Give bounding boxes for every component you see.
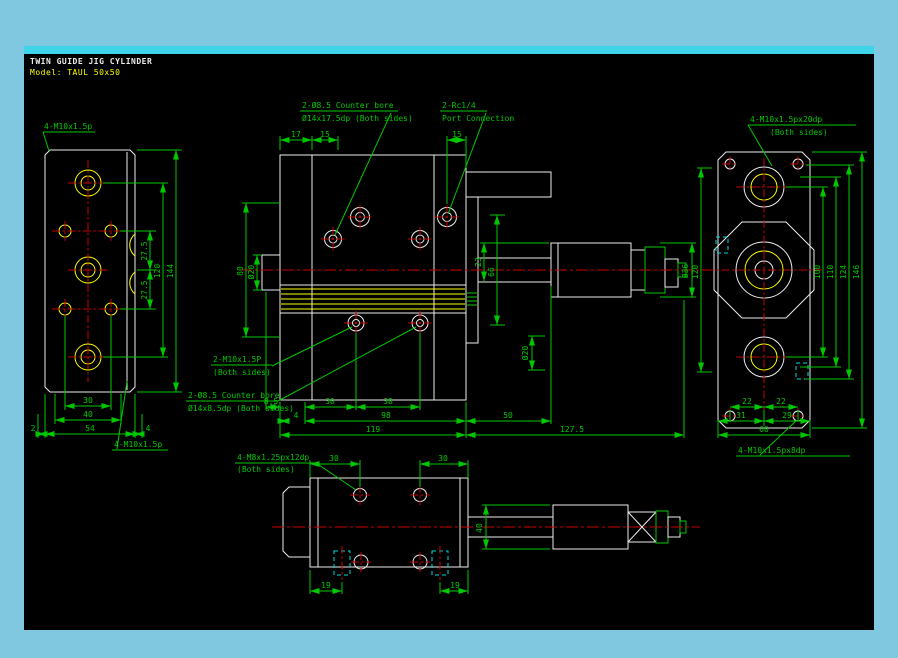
left-dim-30: 30 xyxy=(83,396,93,405)
front-cbore-top-line2: Ø14x17.5dp (Both sides) xyxy=(302,113,413,123)
left-dim-54: 54 xyxy=(85,424,95,433)
bottom-label-line2: (Both sides) xyxy=(237,465,295,474)
bottom-dim-30-right: 30 xyxy=(438,454,448,463)
cad-canvas[interactable]: TWIN GUIDE JIG CYLINDER Model: TAUL 50x5… xyxy=(0,0,898,658)
front-port-line1: 2-Rc1/4 xyxy=(442,101,476,110)
cad-window: TWIN GUIDE JIG CYLINDER Model: TAUL 50x5… xyxy=(0,0,898,658)
right-dim-110: 110 xyxy=(826,265,835,280)
right-label-top-line1: 4-M10x1.5px20dp xyxy=(750,115,822,124)
left-label-bottom: 4-M10x1.5p xyxy=(114,440,162,449)
front-dim-15-left: 15 xyxy=(320,130,330,139)
front-dim-23: 23 xyxy=(474,257,483,267)
right-dim-100: 100 xyxy=(813,265,822,280)
front-dim-98: 98 xyxy=(381,411,391,420)
right-dim-22-right: 22 xyxy=(776,397,786,406)
frame-highlight-strip xyxy=(24,46,874,54)
front-thread-line1: 2-M10x1.5P xyxy=(213,355,261,364)
front-dim-15-right: 15 xyxy=(452,130,462,139)
left-dim-120: 120 xyxy=(153,264,162,279)
front-dim-127-5: 127.5 xyxy=(560,425,584,434)
front-thread-line2: (Both sides) xyxy=(213,368,271,377)
front-dim-50: 50 xyxy=(503,411,513,420)
bottom-dim-19-right: 19 xyxy=(450,581,460,590)
left-dim-pitch-bottom: 27.5 xyxy=(140,280,149,299)
bottom-dim-40: 40 xyxy=(475,523,484,533)
front-dim-17: 17 xyxy=(291,130,301,139)
right-dim-124: 124 xyxy=(839,265,848,280)
left-dim-2: 2 xyxy=(31,424,36,433)
model-text: Model: TAUL 50x50 xyxy=(30,68,120,77)
left-dim-4: 4 xyxy=(146,424,151,433)
right-dim-60: 60 xyxy=(759,425,769,434)
right-dim-29: 29 xyxy=(782,411,792,420)
front-dim-4: 4 xyxy=(294,411,299,420)
front-dim-30: 30 xyxy=(325,397,335,406)
front-dim-8-5: 8.5 xyxy=(264,397,279,406)
front-cbore-top-line1: 2-Ø8.5 Counter bore xyxy=(302,100,394,110)
right-label-bottom: 4-M10x1.5px8dp xyxy=(738,446,806,455)
left-label-top: 4-M10x1.5p xyxy=(44,122,92,131)
right-dim-120: 120 xyxy=(691,265,700,280)
front-dim-66: 66 xyxy=(487,267,496,277)
left-dim-pitch-top: 27.5 xyxy=(140,241,149,260)
front-dim-119: 119 xyxy=(366,425,381,434)
front-dim-d20-rod: Ø20 xyxy=(246,265,256,280)
title-text: TWIN GUIDE JIG CYLINDER xyxy=(30,57,152,66)
bottom-dim-19-left: 19 xyxy=(321,581,331,590)
front-port-line2: Port Connection xyxy=(442,114,514,123)
front-dim-d36: Ø36 xyxy=(680,264,690,279)
right-label-top-line2: (Both sides) xyxy=(770,128,828,137)
front-dim-80: 80 xyxy=(236,266,245,276)
right-dim-146: 146 xyxy=(852,265,861,280)
right-dim-31: 31 xyxy=(736,411,746,420)
front-dim-d20-guide: Ø20 xyxy=(520,346,530,361)
bottom-dim-30-left: 30 xyxy=(329,454,339,463)
front-dim-38: 38 xyxy=(383,397,393,406)
left-dim-144: 144 xyxy=(166,264,175,279)
right-dim-22-left: 22 xyxy=(742,397,752,406)
left-dim-40: 40 xyxy=(83,410,93,419)
bottom-label-line1: 4-M8x1.25px12dp xyxy=(237,453,309,462)
